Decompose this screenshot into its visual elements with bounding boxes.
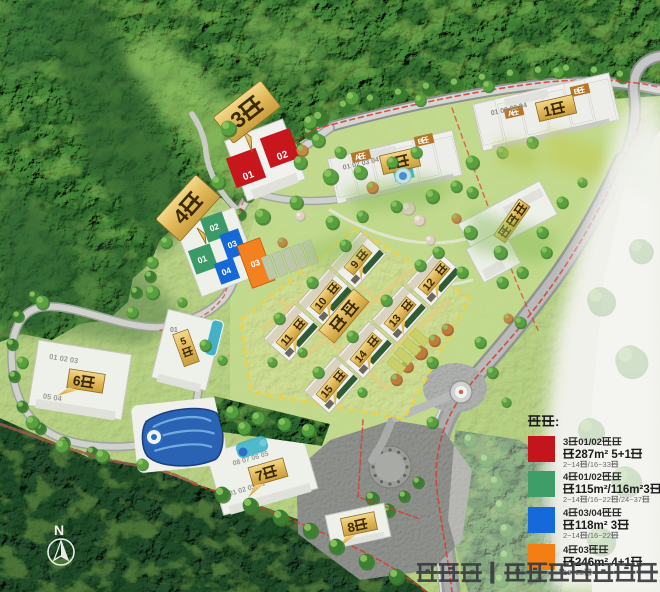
svg-text:03/04: 03/04 bbox=[578, 508, 602, 519]
svg-text::: : bbox=[555, 414, 559, 429]
svg-text:/24~37: /24~37 bbox=[619, 495, 642, 504]
svg-text:03: 03 bbox=[578, 545, 589, 556]
svg-text:2~14: 2~14 bbox=[563, 531, 580, 540]
svg-text:4: 4 bbox=[563, 472, 569, 483]
svg-text:01/02: 01/02 bbox=[578, 437, 602, 448]
svg-text:2~14: 2~14 bbox=[563, 460, 580, 469]
svg-text:01/02: 01/02 bbox=[578, 472, 602, 483]
svg-text:/16~22: /16~22 bbox=[588, 495, 611, 504]
svg-text:4: 4 bbox=[563, 545, 569, 556]
svg-text:N: N bbox=[54, 522, 64, 538]
svg-text:4: 4 bbox=[563, 508, 569, 519]
svg-text:2~14: 2~14 bbox=[563, 495, 580, 504]
svg-text:3: 3 bbox=[563, 437, 568, 448]
svg-text:/16~33: /16~33 bbox=[588, 460, 611, 469]
svg-text:/16~22: /16~22 bbox=[588, 531, 611, 540]
